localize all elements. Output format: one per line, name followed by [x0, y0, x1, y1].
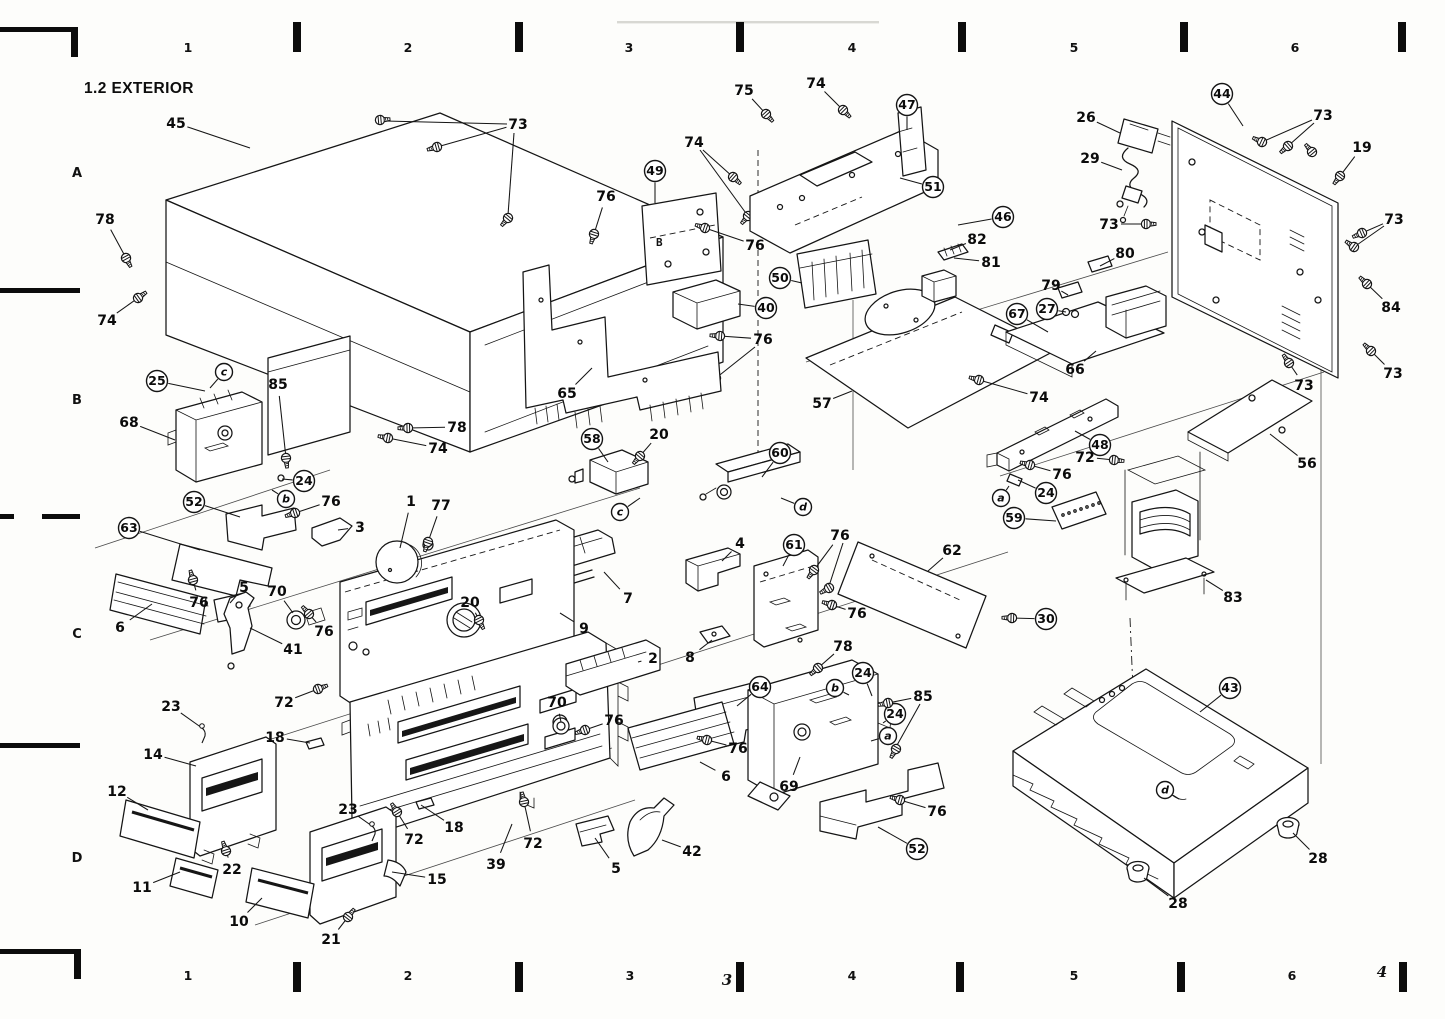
part-callout-81: 81	[954, 255, 1001, 271]
svg-text:74: 74	[428, 441, 448, 457]
svg-text:70: 70	[267, 584, 287, 600]
part-callout-62: 62	[928, 543, 962, 571]
grid-row-label: B	[72, 393, 82, 408]
grid-col-label-bottom: 1	[184, 968, 193, 983]
svg-text:62: 62	[942, 543, 961, 559]
part-callout-42: 42	[662, 840, 702, 860]
part-callout-58: 58	[582, 429, 609, 463]
grid-col-label-top: 2	[404, 40, 413, 55]
part-callout-24: 24	[282, 471, 315, 492]
svg-text:24: 24	[854, 665, 872, 680]
part-callout-20: 20	[630, 427, 669, 467]
svg-text:69: 69	[779, 779, 798, 795]
svg-text:67: 67	[1008, 306, 1025, 321]
svg-text:73: 73	[1383, 366, 1402, 382]
svg-text:70: 70	[547, 695, 567, 711]
svg-text:59: 59	[1005, 510, 1022, 525]
svg-text:24: 24	[295, 473, 313, 488]
svg-text:76: 76	[728, 741, 747, 757]
svg-text:a: a	[884, 730, 891, 743]
svg-text:47: 47	[898, 97, 915, 112]
part-callout-45: 45	[166, 116, 250, 148]
svg-text:76: 76	[830, 528, 849, 544]
svg-text:11: 11	[132, 880, 151, 896]
part-callout-28: 28	[1293, 833, 1328, 867]
svg-text:6: 6	[721, 769, 731, 785]
svg-text:72: 72	[274, 695, 293, 711]
svg-text:61: 61	[785, 537, 802, 552]
part-callout-63: 63	[119, 518, 201, 551]
svg-text:23: 23	[161, 699, 180, 715]
svg-text:49: 49	[646, 163, 663, 178]
svg-text:73: 73	[1294, 378, 1313, 394]
svg-text:64: 64	[751, 679, 769, 694]
svg-text:73: 73	[508, 117, 527, 133]
svg-text:76: 76	[927, 804, 946, 820]
ruler-tick-top	[515, 22, 523, 52]
part-callout-68: 68	[119, 415, 175, 440]
svg-text:d: d	[1161, 784, 1169, 797]
ruler-tick-top	[293, 22, 301, 52]
svg-text:28: 28	[1168, 896, 1187, 912]
svg-text:23: 23	[338, 802, 357, 818]
svg-text:52: 52	[908, 841, 925, 856]
part-callout-23: 23	[161, 699, 205, 743]
svg-text:50: 50	[771, 270, 789, 285]
svg-text:73: 73	[1099, 217, 1118, 233]
part-callout-59: 59	[1004, 508, 1057, 529]
exploded-view-diagram: B	[0, 0, 1445, 1019]
svg-text:72: 72	[1075, 450, 1094, 466]
svg-text:74: 74	[806, 76, 826, 92]
grid-row-label: A	[72, 166, 82, 181]
svg-text:8: 8	[685, 650, 695, 666]
grid-col-label-bottom: 2	[404, 968, 413, 983]
part-callout-d: d	[781, 498, 812, 516]
svg-text:6: 6	[115, 620, 125, 636]
part-callout-8: 8	[685, 640, 712, 666]
svg-text:85: 85	[913, 689, 932, 705]
grid-col-label-bottom: 3	[626, 968, 635, 983]
svg-text:12: 12	[107, 784, 126, 800]
svg-text:a: a	[997, 492, 1004, 505]
svg-text:84: 84	[1381, 300, 1401, 316]
part-callout-14: 14	[143, 747, 196, 766]
svg-text:63: 63	[120, 520, 137, 535]
part-callout-74: 74	[806, 76, 853, 121]
svg-text:76: 76	[314, 624, 333, 640]
part-callout-73: 73	[1361, 341, 1403, 382]
svg-text:41: 41	[283, 642, 302, 658]
part-callout-29: 29	[1080, 151, 1122, 170]
svg-text:b: b	[831, 682, 839, 695]
part-callout-7: 7	[604, 572, 633, 607]
svg-text:72: 72	[404, 832, 423, 848]
part-callout-a: a	[993, 486, 1010, 507]
svg-text:66: 66	[1065, 362, 1084, 378]
part-callout-82: 82	[950, 232, 987, 250]
svg-text:75: 75	[734, 83, 753, 99]
part-callout-6: 6	[700, 762, 731, 785]
svg-text:c: c	[617, 506, 624, 519]
svg-text:24: 24	[1037, 485, 1055, 500]
part-callout-77: 77	[420, 498, 450, 553]
svg-text:18: 18	[444, 820, 463, 836]
svg-text:76: 76	[745, 238, 764, 254]
part-callout-18: 18	[265, 730, 310, 746]
part-callout-72: 72	[274, 681, 329, 711]
svg-text:51: 51	[924, 179, 941, 194]
svg-text:74: 74	[684, 135, 704, 151]
svg-text:76: 76	[189, 595, 208, 611]
part-callout-49: 49	[645, 161, 666, 204]
svg-text:72: 72	[523, 836, 542, 852]
svg-text:83: 83	[1223, 590, 1242, 606]
svg-text:7: 7	[623, 591, 633, 607]
svg-text:43: 43	[1221, 680, 1238, 695]
svg-text:20: 20	[649, 427, 669, 443]
part-callout-1: 1	[400, 494, 416, 548]
svg-text:74: 74	[1029, 390, 1049, 406]
part-callout-10: 10	[229, 898, 262, 930]
part-callout-c: c	[210, 364, 233, 389]
svg-text:52: 52	[185, 494, 202, 509]
svg-text:73: 73	[1384, 212, 1403, 228]
svg-text:10: 10	[229, 914, 249, 930]
part-callout-44: 44	[1212, 84, 1244, 127]
part-callout-52: 52	[878, 827, 928, 860]
svg-text:76: 76	[753, 332, 772, 348]
svg-text:c: c	[221, 366, 228, 379]
ruler-tick-bottom	[956, 962, 964, 992]
svg-text:9: 9	[579, 621, 589, 637]
svg-text:18: 18	[265, 730, 284, 746]
grid-col-label-top: 1	[184, 40, 193, 55]
svg-text:76: 76	[847, 606, 866, 622]
svg-text:28: 28	[1308, 851, 1327, 867]
ruler-tick-top	[958, 22, 966, 52]
grid-row-label: D	[72, 851, 83, 866]
part-callout-85: 85	[877, 689, 932, 710]
part-callout-84: 84	[1357, 274, 1401, 316]
svg-text:77: 77	[431, 498, 450, 514]
svg-text:29: 29	[1080, 151, 1099, 167]
ruler-tick-bottom	[515, 962, 523, 992]
grid-col-label-bottom: 4	[848, 968, 857, 983]
part-callout-75: 75	[734, 83, 776, 125]
grid-row-label: C	[72, 627, 82, 642]
svg-text:1: 1	[406, 494, 416, 510]
svg-text:78: 78	[833, 639, 852, 655]
svg-text:76: 76	[604, 713, 623, 729]
ruler-tick-bottom	[736, 962, 744, 992]
grid-col-label-bottom: 6	[1288, 968, 1297, 983]
svg-text:58: 58	[583, 431, 600, 446]
part-callout-5: 5	[595, 838, 621, 877]
svg-text:42: 42	[682, 844, 701, 860]
part-callout-72: 72	[517, 791, 542, 852]
service-manual-page: 1.2 EXTERIOR	[0, 0, 1445, 1019]
svg-text:60: 60	[771, 445, 789, 460]
handwritten-mark: 4	[1377, 963, 1387, 981]
svg-text:76: 76	[321, 494, 340, 510]
svg-text:d: d	[799, 501, 807, 514]
ruler-tick-top	[1180, 22, 1188, 52]
svg-text:14: 14	[143, 747, 163, 763]
part-callout-56: 56	[1270, 434, 1317, 472]
ruler-tick-top	[1398, 22, 1406, 52]
part-callout-57: 57	[812, 391, 852, 412]
svg-text:78: 78	[95, 212, 114, 228]
part-callout-50: 50	[770, 268, 803, 289]
svg-text:81: 81	[981, 255, 1000, 271]
part-callout-83: 83	[1206, 580, 1243, 606]
grid-col-label-top: 3	[625, 40, 634, 55]
svg-text:2: 2	[648, 651, 658, 667]
part-callout-73: 73	[1099, 217, 1156, 233]
part-callout-70: 70	[267, 584, 293, 613]
part-callout-24: 24	[1018, 480, 1057, 504]
svg-text:24: 24	[886, 706, 904, 721]
svg-text:80: 80	[1115, 246, 1135, 262]
svg-text:78: 78	[447, 420, 466, 436]
svg-text:20: 20	[460, 595, 480, 611]
svg-text:b: b	[282, 493, 290, 506]
plate-marking-b: B	[656, 236, 663, 249]
svg-text:76: 76	[1052, 467, 1071, 483]
ruler-tick-bottom	[293, 962, 301, 992]
svg-text:5: 5	[239, 580, 249, 596]
svg-text:27: 27	[1038, 301, 1055, 316]
svg-text:57: 57	[812, 396, 831, 412]
part-callout-46: 46	[958, 207, 1014, 228]
part-callout-74: 74	[684, 135, 743, 187]
svg-text:3: 3	[355, 520, 365, 536]
svg-text:73: 73	[1313, 108, 1332, 124]
part-callout-43: 43	[1200, 678, 1241, 713]
handwritten-mark: 3	[722, 971, 732, 989]
svg-text:22: 22	[222, 862, 241, 878]
part-callout-26: 26	[1076, 110, 1120, 133]
part-callout-80: 80	[1100, 246, 1135, 266]
part-callout-78: 78	[95, 212, 135, 269]
svg-text:82: 82	[967, 232, 986, 248]
svg-text:25: 25	[148, 373, 165, 388]
ruler-tick-bottom	[1399, 962, 1407, 992]
part-callout-c: c	[612, 498, 641, 521]
page-frame-marks	[0, 27, 81, 979]
svg-text:4: 4	[735, 536, 745, 552]
svg-text:5: 5	[611, 861, 621, 877]
grid-col-label-top: 6	[1291, 40, 1300, 55]
svg-text:15: 15	[427, 872, 446, 888]
svg-text:65: 65	[557, 386, 576, 402]
svg-text:74: 74	[97, 313, 117, 329]
svg-text:21: 21	[321, 932, 340, 948]
part-callout-25: 25	[147, 371, 206, 392]
svg-text:56: 56	[1297, 456, 1316, 472]
part-callout-b: b	[272, 490, 295, 508]
part-callout-30: 30	[1002, 609, 1057, 630]
svg-text:40: 40	[757, 300, 775, 315]
grid-col-label-top: 4	[848, 40, 857, 55]
svg-text:39: 39	[486, 857, 505, 873]
part-callout-40: 40	[738, 298, 777, 319]
svg-text:85: 85	[268, 377, 287, 393]
ruler-tick-top	[736, 22, 744, 52]
svg-text:30: 30	[1037, 611, 1055, 626]
svg-text:68: 68	[119, 415, 138, 431]
part-callout-41: 41	[250, 628, 303, 658]
part-callout-74: 74	[97, 288, 149, 328]
svg-text:76: 76	[596, 189, 615, 205]
svg-text:46: 46	[994, 209, 1012, 224]
svg-text:26: 26	[1076, 110, 1095, 126]
part-callout-73: 73	[1351, 212, 1404, 241]
ruler-tick-bottom	[1177, 962, 1185, 992]
part-callout-19: 19	[1330, 140, 1371, 187]
svg-text:44: 44	[1213, 86, 1231, 101]
svg-text:79: 79	[1041, 278, 1060, 294]
svg-text:19: 19	[1352, 140, 1371, 156]
grid-col-label-top: 5	[1070, 40, 1079, 55]
grid-col-label-bottom: 5	[1070, 968, 1079, 983]
part-callout-39: 39	[486, 824, 512, 873]
diagram-line-art: B	[95, 21, 1384, 925]
svg-text:45: 45	[166, 116, 185, 132]
